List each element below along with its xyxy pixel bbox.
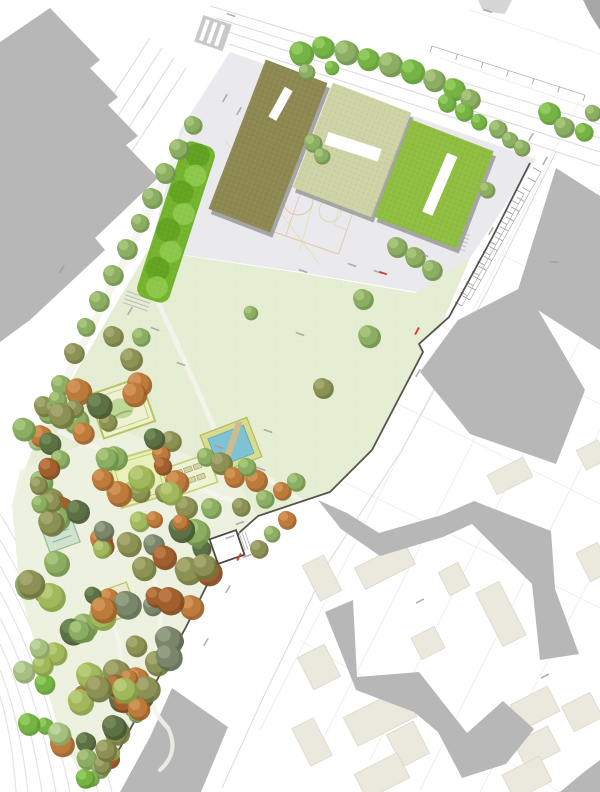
tree (278, 511, 297, 530)
parking-bay-tick (522, 187, 530, 191)
tree-highlight (257, 491, 266, 500)
tree-highlight (114, 679, 127, 692)
tree-highlight (424, 261, 434, 271)
tree-highlight (274, 483, 283, 492)
parcel-line (470, 10, 600, 54)
tree-highlight (265, 527, 273, 535)
tree (250, 540, 269, 559)
tree-highlight (119, 240, 129, 250)
tree-highlight (158, 645, 171, 658)
tree-highlight (50, 404, 63, 417)
tree-highlight (503, 133, 511, 141)
parking-bay-tick (506, 210, 513, 214)
parking-bay-tick (532, 79, 534, 85)
tree-highlight (185, 117, 194, 126)
tree-highlight (314, 37, 325, 48)
tree-highlight (177, 558, 191, 572)
annotation-mark (550, 261, 559, 263)
tree-highlight (155, 458, 164, 467)
tree-highlight (239, 459, 248, 468)
tree-highlight (174, 515, 182, 523)
tree-highlight (515, 141, 523, 149)
tree (575, 123, 594, 142)
tree-highlight (305, 135, 314, 144)
tree-highlight (326, 62, 333, 69)
tree-highlight (122, 349, 133, 360)
tree-highlight (425, 70, 436, 81)
tree (423, 69, 446, 92)
tree-highlight (144, 189, 154, 199)
tree-highlight (171, 140, 181, 150)
parking-bay-tick (517, 190, 524, 194)
site-plan-canvas (0, 0, 600, 792)
tree-highlight (53, 376, 63, 386)
tree-highlight (105, 266, 115, 276)
tree-highlight (91, 292, 101, 302)
tree-highlight (40, 459, 51, 470)
tree-highlight (145, 535, 155, 545)
tree-highlight (50, 392, 59, 401)
tree-highlight (407, 248, 417, 258)
city-block (576, 542, 600, 581)
tree-highlight (134, 558, 146, 570)
tree-highlight (480, 183, 488, 191)
tree-highlight (87, 677, 100, 690)
tree-highlight (15, 662, 26, 673)
parking-bay-tick (533, 168, 541, 172)
tree-highlight (31, 640, 41, 650)
tree-highlight (115, 592, 129, 606)
tree-highlight (212, 453, 223, 464)
tree-highlight (68, 501, 79, 512)
tree-highlight (233, 499, 242, 508)
tree (18, 713, 41, 736)
tree-highlight (86, 588, 94, 596)
tree-highlight (576, 124, 585, 133)
tree-highlight (52, 451, 61, 460)
tree-highlight (78, 319, 87, 328)
parking-bay-tick (456, 54, 458, 60)
city-block (487, 457, 533, 495)
tree-highlight (104, 716, 116, 728)
tree-highlight (540, 103, 551, 114)
city-block (292, 718, 332, 766)
tree-highlight (35, 397, 45, 407)
tree-highlight (402, 61, 414, 73)
building-south-corner (560, 760, 600, 792)
pavilion-step (242, 532, 248, 549)
tree-highlight (70, 691, 83, 704)
tree-highlight (315, 379, 325, 389)
tree-highlight (77, 770, 86, 779)
parking-bay-tick (473, 276, 481, 280)
tree-highlight (445, 79, 456, 90)
city-block (576, 440, 600, 470)
tree-highlight (355, 290, 365, 300)
tree-highlight (203, 499, 213, 509)
city-block (561, 692, 600, 731)
crosswalk (194, 15, 231, 51)
tree-highlight (145, 429, 155, 439)
parking-bay-tick (528, 177, 536, 181)
tree-highlight (74, 423, 85, 434)
annotation-mark (528, 133, 534, 142)
tree-highlight (198, 449, 207, 458)
tree-highlight (336, 42, 348, 54)
tree-highlight (300, 65, 308, 73)
tree-highlight (33, 497, 42, 506)
tree-highlight (490, 121, 499, 130)
tree (378, 52, 403, 77)
tree-highlight (245, 307, 252, 314)
tree-highlight (67, 380, 80, 393)
tree-highlight (131, 513, 141, 523)
tree-highlight (97, 741, 108, 752)
tree-highlight (472, 115, 480, 123)
tree-highlight (66, 344, 76, 354)
tree-highlight (147, 512, 155, 520)
lane-dash (142, 95, 150, 108)
tree-highlight (78, 664, 91, 677)
tree-highlight (157, 164, 167, 174)
tree-highlight (14, 419, 25, 430)
tree-highlight (105, 327, 115, 337)
parking-bay-tick (583, 95, 585, 101)
tree-highlight (41, 434, 52, 445)
tree-highlight (288, 474, 297, 483)
tree-highlight (251, 541, 260, 550)
building-northeast-corner (583, 0, 600, 30)
tree-highlight (158, 589, 172, 603)
annotation-mark (416, 598, 425, 604)
tree-highlight (92, 598, 105, 611)
tree-highlight (118, 533, 130, 545)
parking-bay-tick (479, 266, 487, 270)
tree-highlight (291, 43, 303, 55)
tree-highlight (127, 637, 137, 647)
tree-highlight (19, 714, 30, 725)
city-block (438, 562, 469, 595)
tree (289, 41, 314, 66)
tree-highlight (93, 470, 104, 481)
tree-highlight (154, 547, 166, 559)
tree-highlight (556, 118, 566, 128)
tree-highlight (94, 541, 103, 550)
tree-highlight (279, 512, 288, 521)
tree-highlight (78, 750, 88, 760)
tree (325, 61, 340, 76)
city-block (302, 555, 342, 602)
tree-highlight (389, 238, 399, 248)
parking-bay-tick (481, 62, 483, 68)
city-block (411, 626, 445, 659)
parking-bay-tick (507, 71, 509, 77)
tree-highlight (50, 724, 61, 735)
tree-highlight (70, 621, 81, 632)
tree-highlight (439, 95, 448, 104)
tree (554, 117, 575, 138)
tree (264, 526, 281, 543)
tree (13, 661, 36, 684)
traffic-island-north (478, 0, 512, 14)
annotation-mark (203, 638, 209, 647)
tree (334, 40, 359, 65)
tree-highlight (161, 483, 172, 494)
tree-highlight (88, 394, 101, 407)
masterplan-drawing (0, 0, 600, 792)
tree-highlight (97, 449, 108, 460)
tree (357, 48, 380, 71)
tree-highlight (360, 326, 371, 337)
tree (471, 114, 488, 131)
tree-highlight (380, 54, 392, 66)
tree-highlight (130, 467, 143, 480)
parking-bay-tick (484, 256, 492, 260)
parking-bay-tick (511, 200, 518, 204)
city-block (297, 644, 340, 690)
tree-highlight (147, 588, 157, 598)
tree-highlight (315, 149, 323, 157)
parking-bay-tick (430, 46, 432, 52)
tree-highlight (46, 552, 59, 565)
tree (400, 59, 425, 84)
tree-highlight (31, 478, 40, 487)
city-block (476, 581, 526, 646)
tree-highlight (132, 215, 141, 224)
tree-highlight (359, 49, 370, 60)
tree-highlight (77, 733, 87, 743)
tree-highlight (194, 555, 206, 567)
tree (312, 36, 335, 59)
tree-highlight (95, 522, 105, 532)
tree-highlight (124, 384, 136, 396)
tree-highlight (19, 571, 33, 585)
tree-highlight (157, 628, 171, 642)
tree-highlight (462, 90, 472, 100)
tree-highlight (226, 468, 236, 478)
tree-highlight (456, 104, 465, 113)
annotation-mark (415, 369, 421, 378)
tree (12, 418, 36, 442)
tree-highlight (586, 106, 594, 114)
tree-highlight (133, 329, 142, 338)
annotation-mark (541, 673, 550, 679)
parking-bay-tick (558, 87, 560, 93)
tree (585, 105, 600, 122)
tree-highlight (105, 661, 119, 675)
annotation-mark (225, 585, 231, 594)
